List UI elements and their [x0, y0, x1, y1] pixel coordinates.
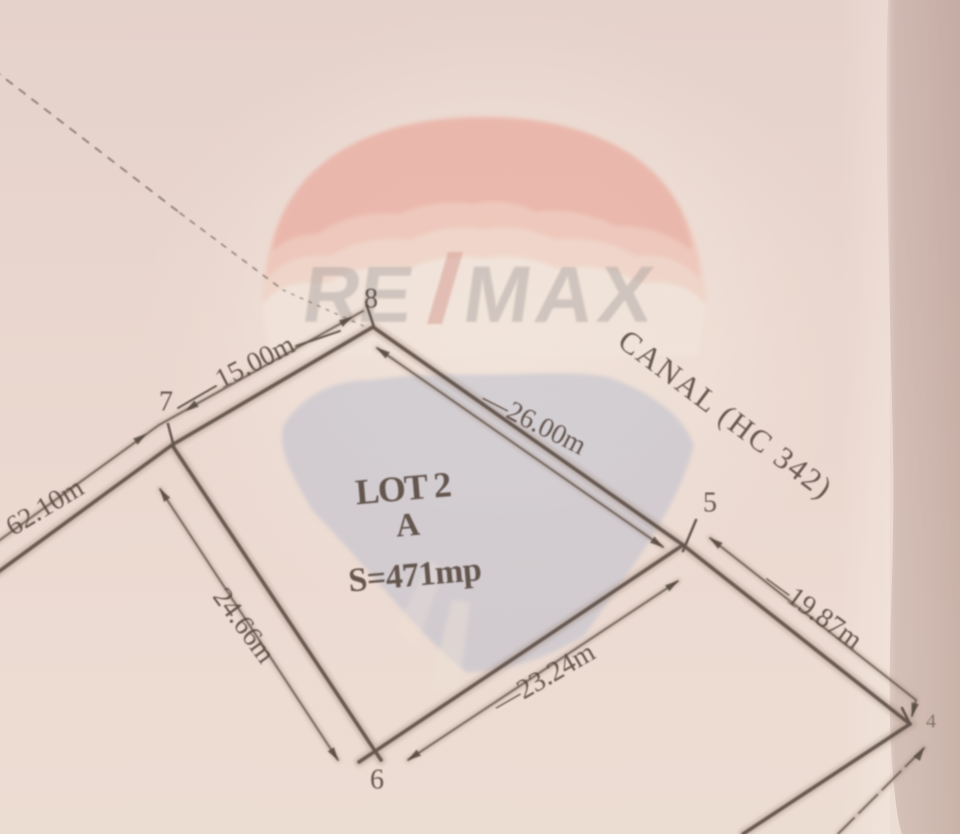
- svg-text:8: 8: [364, 283, 378, 314]
- svg-text:A: A: [394, 507, 421, 545]
- svg-text:RE: RE: [297, 250, 417, 340]
- svg-text:LOT 2: LOT 2: [354, 464, 452, 512]
- svg-text:4: 4: [926, 711, 936, 733]
- svg-text:7: 7: [159, 386, 173, 417]
- svg-text:6: 6: [370, 764, 384, 795]
- svg-text:5: 5: [703, 487, 717, 518]
